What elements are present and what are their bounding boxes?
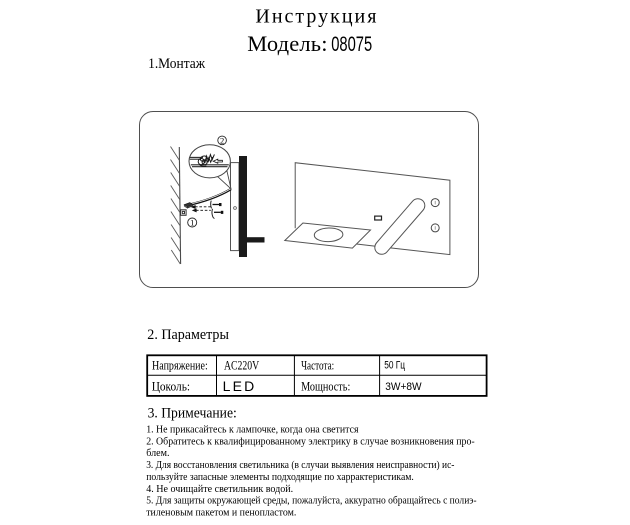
svg-text:1. Не прикасайтесь к лампочке,: 1. Не прикасайтесь к лампочке, когда она…: [146, 425, 359, 436]
svg-text:Цоколь:: Цоколь:: [152, 380, 190, 394]
svg-text:Инструкция: Инструкция: [255, 5, 376, 27]
svg-text:Мощность:: Мощность:: [301, 380, 350, 394]
svg-text:пользуйте запасные элементы по: пользуйте запасные элементы подходящие п…: [146, 472, 414, 483]
svg-text:50 Гц: 50 Гц: [384, 360, 405, 372]
svg-text:Напряжение:: Напряжение:: [152, 358, 208, 372]
svg-text:08075: 08075: [331, 32, 372, 56]
svg-text:2. Обратитесь к квалифицирован: 2. Обратитесь к квалифицированному элект…: [146, 436, 475, 447]
svg-text:блем.: блем.: [146, 448, 169, 459]
svg-text:2: 2: [220, 136, 224, 146]
svg-text:тиленовым пакетом и пенопласто: тиленовым пакетом и пенопластом.: [146, 508, 296, 519]
svg-text:3. Примечание:: 3. Примечание:: [148, 406, 237, 422]
svg-text:3W+8W: 3W+8W: [385, 381, 422, 393]
svg-text:3. Для восстановления светильн: 3. Для восстановления светильника (в слу…: [146, 460, 455, 471]
svg-text:Частота:: Частота:: [301, 358, 334, 372]
svg-text:Модель:: Модель:: [247, 31, 327, 56]
svg-text:4. Не очищайте светильник вод: 4. Не очищайте светильник водой.: [146, 484, 293, 495]
svg-text:AC220V: AC220V: [224, 358, 259, 372]
svg-text:LED: LED: [223, 378, 255, 394]
svg-text:1: 1: [190, 218, 194, 228]
svg-text:2. Параметры: 2. Параметры: [147, 327, 229, 343]
svg-text:1.Монтаж: 1.Монтаж: [148, 56, 205, 72]
svg-text:5. Для защиты окружающей среды: 5. Для защиты окружающей среды, пожалуйс…: [146, 496, 477, 507]
